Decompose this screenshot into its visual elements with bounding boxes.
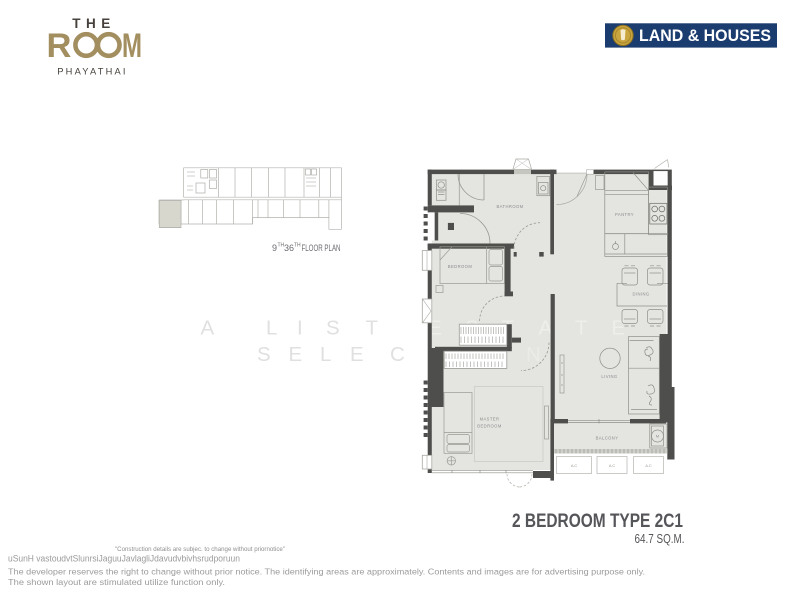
svg-text:L: L (266, 317, 277, 340)
svg-text:2 BEDROOM TYPE 2C1: 2 BEDROOM TYPE 2C1 (512, 510, 683, 532)
svg-text:A.C: A.C (571, 464, 578, 468)
svg-text:FLOOR PLAN: FLOOR PLAN (302, 243, 341, 253)
svg-text:S: S (257, 343, 271, 366)
svg-text:"Construction details are subj: "Construction details are subjec. to cha… (115, 547, 285, 553)
svg-text:BATHROOM: BATHROOM (496, 204, 523, 209)
svg-text:T: T (366, 317, 379, 340)
svg-text:BALCONY: BALCONY (596, 436, 619, 441)
svg-text:L: L (320, 343, 331, 366)
svg-text:A: A (201, 317, 215, 340)
svg-text:9: 9 (272, 243, 277, 253)
svg-text:uSunH vastoudvtSlunrsiJaguuJav: uSunH vastoudvtSlunrsiJaguuJavlagliJdavu… (8, 554, 240, 564)
svg-text:LIVING: LIVING (601, 374, 617, 379)
svg-text:PHAYATHAI: PHAYATHAI (57, 67, 127, 77)
svg-text:S: S (326, 317, 340, 340)
svg-text:A.C: A.C (609, 464, 616, 468)
svg-text:MASTER: MASTER (480, 417, 500, 422)
svg-text:A: A (539, 317, 553, 340)
svg-text:N: N (526, 343, 541, 366)
svg-text:LAND & HOUSES: LAND & HOUSES (639, 27, 771, 45)
svg-text:64.7 SQ.M.: 64.7 SQ.M. (635, 531, 685, 546)
svg-text:BEDROOM: BEDROOM (477, 424, 502, 429)
svg-text:The developer reserves the rig: The developer reserves the right to chan… (8, 567, 645, 577)
svg-text:The shown layout are stimulate: The shown layout are stimulated utilize … (8, 577, 225, 587)
svg-text:C: C (390, 343, 405, 366)
svg-text:PANTRY: PANTRY (615, 212, 634, 217)
svg-text:DINING: DINING (632, 292, 649, 297)
svg-text:M: M (122, 27, 142, 65)
svg-text:TH: TH (294, 243, 301, 249)
svg-text:A.C: A.C (645, 464, 652, 468)
svg-text:E: E (612, 317, 626, 340)
svg-text:T: T (575, 317, 588, 340)
svg-text:BEDROOM: BEDROOM (448, 264, 473, 269)
svg-text:M: M (656, 435, 659, 439)
svg-text:R: R (47, 27, 72, 65)
svg-text:E: E (289, 343, 303, 366)
svg-text:36: 36 (284, 243, 294, 253)
svg-text:THE: THE (72, 16, 116, 31)
svg-text:E: E (350, 343, 364, 366)
svg-text:I: I (297, 317, 303, 340)
